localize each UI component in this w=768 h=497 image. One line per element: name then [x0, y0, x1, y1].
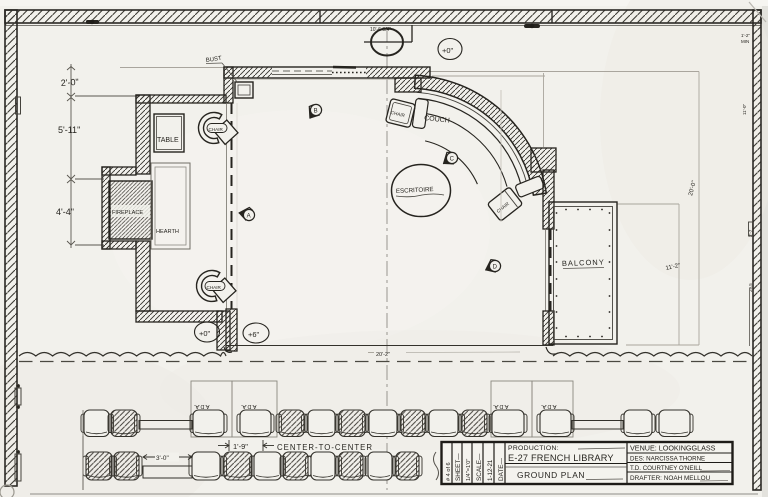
- svg-text:DATE—: DATE—: [498, 457, 505, 481]
- svg-text:A.D.A.: A.D.A.: [493, 403, 509, 409]
- svg-text:A.D.A.: A.D.A.: [194, 403, 210, 409]
- svg-text:SCALE—: SCALE—: [476, 453, 483, 481]
- svg-text:C: C: [450, 156, 455, 162]
- svg-text:+0": +0": [199, 329, 211, 338]
- svg-text:VENUE: LOOKINGGLASS: VENUE: LOOKINGGLASS: [630, 444, 716, 453]
- svg-text:5'-11": 5'-11": [58, 125, 80, 135]
- svg-text:29.5: 29.5: [748, 283, 753, 292]
- svg-text:# 4 of 6: # 4 of 6: [446, 462, 452, 481]
- svg-text:MIN: MIN: [741, 39, 749, 44]
- svg-text:B: B: [314, 108, 318, 114]
- svg-text:+6": +6": [248, 330, 260, 339]
- svg-text:1'-9": 1'-9": [233, 442, 248, 451]
- svg-text:E-27 FRENCH LIBRARY: E-27 FRENCH LIBRARY: [508, 453, 614, 463]
- svg-text:3'-0": 3'-0": [156, 455, 169, 462]
- svg-text:11'-0": 11'-0": [742, 103, 747, 115]
- svg-text:2'-0": 2'-0": [60, 77, 79, 88]
- svg-text:1/4"=1'0": 1/4"=1'0": [466, 459, 472, 481]
- svg-text:HEARTH: HEARTH: [156, 229, 179, 235]
- svg-text:1-12-21: 1-12-21: [487, 459, 494, 481]
- svg-text:1'-2": 1'-2": [741, 33, 750, 38]
- svg-text:D: D: [493, 264, 498, 270]
- svg-text:CENTER-TO-CENTER: CENTER-TO-CENTER: [277, 443, 373, 452]
- svg-text:CHAIR: CHAIR: [207, 285, 222, 290]
- svg-text:DES: NARCISSA THORNE: DES: NARCISSA THORNE: [630, 456, 705, 463]
- svg-text:SHEET—: SHEET—: [455, 453, 462, 481]
- svg-text:FIREPLACE: FIREPLACE: [112, 210, 143, 216]
- svg-text:10'-6 3/4": 10'-6 3/4": [370, 27, 391, 33]
- svg-text:BALCONY: BALCONY: [562, 258, 605, 268]
- svg-text:20'-2": 20'-2": [376, 352, 390, 358]
- svg-text:TABLE: TABLE: [157, 137, 179, 144]
- svg-text:PRODUCTION:: PRODUCTION:: [508, 445, 559, 452]
- svg-text:CHAIR: CHAIR: [209, 127, 224, 132]
- svg-text:GROUND PLAN: GROUND PLAN: [517, 470, 585, 480]
- svg-text:+0": +0": [442, 46, 454, 55]
- svg-text:T.D. COURTNEY O'NEILL: T.D. COURTNEY O'NEILL: [630, 465, 703, 472]
- svg-text:A: A: [247, 213, 251, 219]
- svg-text:4'-4": 4'-4": [56, 207, 74, 217]
- svg-text:DRAFTER: NOAH MELLOU: DRAFTER: NOAH MELLOU: [630, 475, 711, 482]
- svg-text:A.D.A.: A.D.A.: [241, 403, 257, 409]
- svg-text:A.D.A.: A.D.A.: [541, 403, 557, 409]
